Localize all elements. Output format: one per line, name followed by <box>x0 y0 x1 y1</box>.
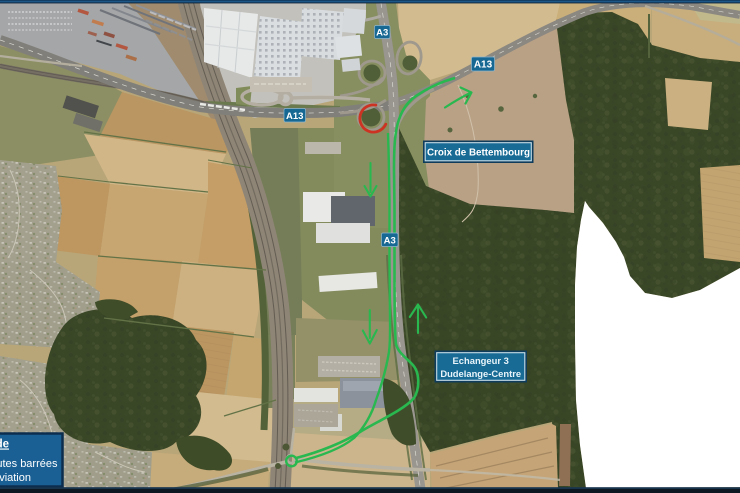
svg-text:A13: A13 <box>474 60 493 71</box>
svg-text:Croix de Bettembourg: Croix de Bettembourg <box>427 148 530 159</box>
svg-text:Echangeur 3: Echangeur 3 <box>453 355 509 366</box>
svg-text:déviation: déviation <box>0 472 31 484</box>
svg-text:A13: A13 <box>286 111 303 122</box>
svg-text:A3: A3 <box>384 236 396 247</box>
svg-text:A3: A3 <box>376 28 388 39</box>
svg-text:Légende: Légende <box>0 439 9 451</box>
svg-text:routes barrées: routes barrées <box>0 458 58 470</box>
svg-text:Dudelange-Centre: Dudelange-Centre <box>440 368 521 379</box>
